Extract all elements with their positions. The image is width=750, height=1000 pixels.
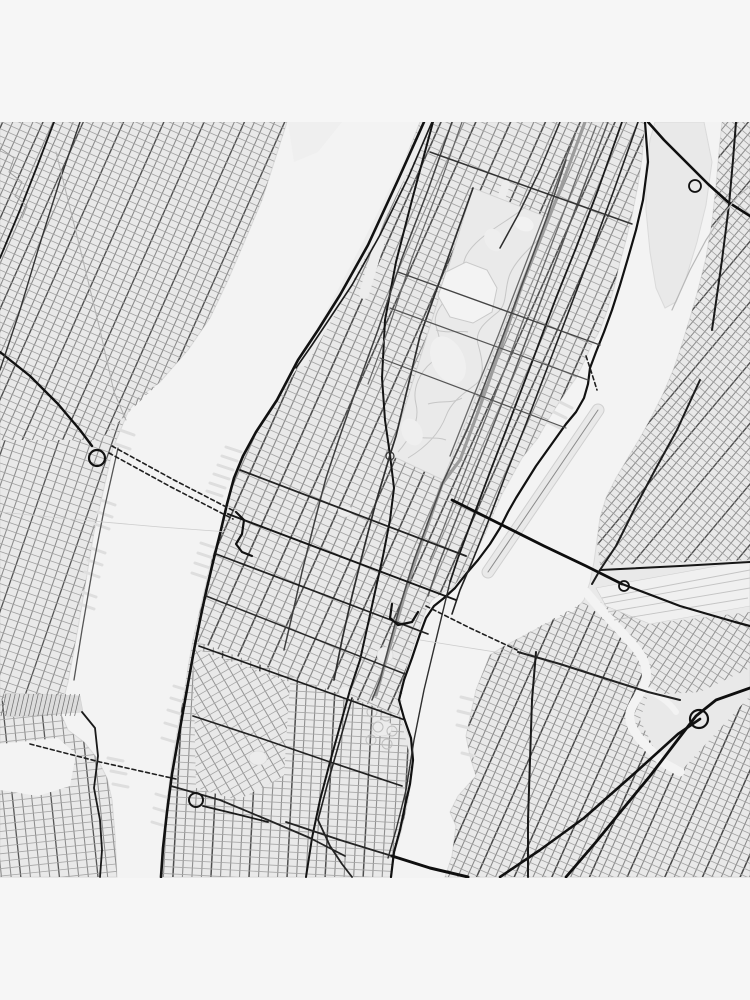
nyc-map-image: [0, 122, 750, 878]
top-margin-band: [0, 0, 750, 122]
washington-square-park: [249, 751, 267, 765]
bottom-margin-band: [0, 878, 750, 1000]
map-poster-page: [0, 0, 750, 1000]
nyc-map-svg: [0, 122, 750, 878]
